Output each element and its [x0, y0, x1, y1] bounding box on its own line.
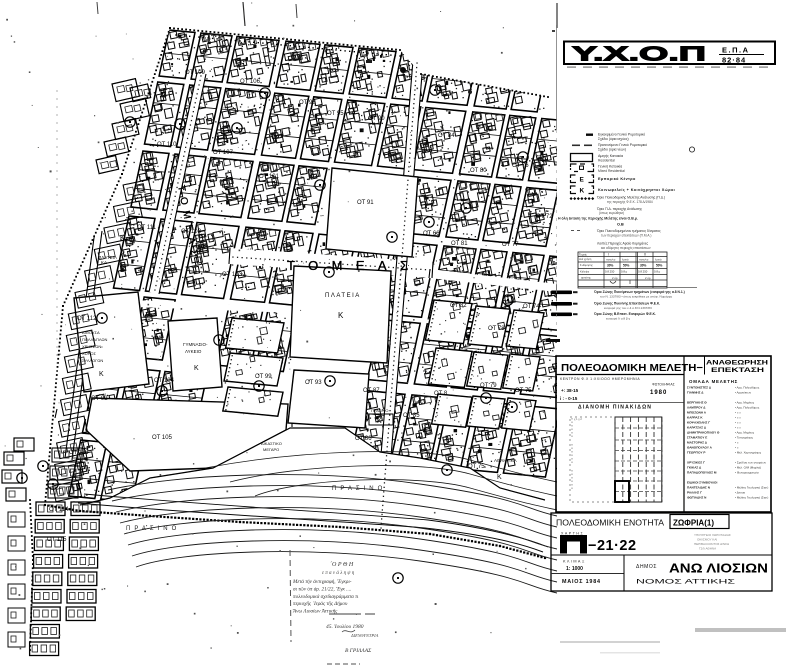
svg-text:ε π α ν ά λ η ψ η: ε π α ν ά λ η ψ η	[322, 571, 355, 576]
svg-text:ΔΙΕΥΘΥΝΤΡΙΑ: ΔΙΕΥΘΥΝΤΡΙΑ	[350, 633, 379, 638]
svg-text:ΛΥΚΕΙΟ: ΛΥΚΕΙΟ	[185, 349, 202, 354]
svg-text:αρτιότης: αρτιότης	[581, 276, 591, 280]
svg-text:ΚΑΡΡΑΣ Κ: ΚΑΡΡΑΣ Κ	[687, 416, 703, 420]
svg-text:30%: 30%	[640, 264, 647, 268]
svg-text:ΟΤ 93: ΟΤ 93	[305, 380, 322, 386]
svg-text:1: 1000: 1: 1000	[566, 566, 583, 572]
svg-text:Τομείς: Τομείς	[579, 253, 587, 257]
svg-text:πυκν/νο: πυκν/νο	[639, 258, 649, 262]
svg-text:50%: 50%	[656, 264, 663, 268]
svg-text:• Δίκτυα: • Δίκτυα	[735, 491, 745, 495]
svg-text:ΟΤ 90: ΟΤ 90	[368, 116, 385, 122]
svg-text:ΟΤ 103: ΟΤ 103	[222, 272, 243, 278]
svg-text:ΟΤ 92: ΟΤ 92	[91, 396, 108, 402]
svg-text:Ε: Ε	[580, 177, 585, 184]
svg-text:ΟΤ 113: ΟΤ 113	[69, 450, 89, 456]
svg-text:ΠΟΛΛΑΠΛΩΝ: ΠΟΛΛΑΠΛΩΝ	[82, 337, 107, 342]
svg-text:ΟΤ 95: ΟΤ 95	[327, 111, 344, 117]
svg-text:Ε.Π.Α: Ε.Π.Α	[722, 46, 750, 55]
svg-text:και αδόμητες περιοχές επεκτ: και αδόμητες περιοχές επεκτάσεων	[601, 246, 651, 250]
svg-text:ΧΡΗΣΕΩΝ•: ΧΡΗΣΕΩΝ•	[82, 344, 103, 349]
svg-text:ΟΤ 75: ΟΤ 75	[515, 388, 532, 394]
svg-text:ΘΑΝΟΠΟΥΛΟΥ Α: ΘΑΝΟΠΟΥΛΟΥ Α	[687, 446, 713, 450]
svg-text:• Μελ. Ο/Μ (Μηχ/κή): • Μελ. Ο/Μ (Μηχ/κή)	[735, 466, 761, 470]
svg-text:50%: 50%	[623, 264, 630, 268]
svg-text:(όπως κυρώθηκε): (όπως κυρώθηκε)	[599, 211, 624, 215]
svg-text:Σχέδιο (όρια ισχύος): Σχέδιο (όρια ισχύος)	[598, 137, 629, 141]
svg-text:ΟΤ 77: ΟΤ 77	[502, 242, 519, 248]
svg-text:45. Ἰουλίου 1980: 45. Ἰουλίου 1980	[326, 623, 364, 630]
svg-text:• Τοπογράφος: • Τοπογράφος	[735, 436, 754, 440]
svg-text:ΔΙΑΝΟΜΗ ΠΙΝΑΚΙΔΩΝ: ΔΙΑΝΟΜΗ ΠΙΝΑΚΙΔΩΝ	[578, 405, 652, 411]
svg-text:ΧΩΡΟΣ: ΧΩΡΟΣ	[82, 351, 96, 356]
svg-text:• Σχεδ/ση των στοιχείων: • Σχεδ/ση των στοιχείων	[735, 461, 766, 465]
svg-text:ΠΟΛΕΟΔΟΜΙΚΗ ΕΝΟΤΗΤΑ: ΠΟΛΕΟΔΟΜΙΚΗ ΕΝΟΤΗΤΑ	[556, 519, 665, 528]
svg-text:i : - 0-15: i : - 0-15	[560, 396, 578, 401]
svg-text:• Μελέτη Γεωλογική (Στατ): • Μελέτη Γεωλογική (Στατ)	[735, 486, 768, 490]
svg-text:ΟΤ 78: ΟΤ 78	[488, 326, 505, 332]
svg-text:• » »: • » »	[735, 411, 741, 415]
svg-text:ΑΘΛΗΤΙΚΑ: ΑΘΛΗΤΙΚΑ	[494, 458, 517, 463]
svg-text:Υ.Χ.Ο.Π: Υ.Χ.Ο.Π	[572, 44, 706, 66]
svg-text:Προτεινόμενο Γενικό Ρυμοτομικό: Προτεινόμενο Γενικό Ρυμοτομικό	[598, 143, 647, 147]
svg-text:ΛΑΜΠΡΟΥ Δ: ΛΑΜΠΡΟΥ Δ	[687, 406, 706, 410]
svg-text:΄Ο Ρ Θ Η: ΄Ο Ρ Θ Η	[330, 562, 354, 568]
svg-text:Ι: Ι	[608, 253, 609, 257]
svg-text:ΧΑΡΤΗΣ: ΧΑΡΤΗΣ	[561, 532, 584, 536]
svg-text:ΚΛΙΜΑΞ: ΚΛΙΜΑΞ	[563, 560, 586, 564]
svg-text:• Αρχ. Πολεοδόμος: • Αρχ. Πολεοδόμος	[735, 406, 760, 410]
svg-text:• Φωτογραμμετρία: • Φωτογραμμετρία	[735, 471, 759, 475]
svg-text:Κ: Κ	[120, 235, 125, 242]
svg-text:λοιπά: λοιπά	[622, 258, 629, 262]
svg-text:Σχέδιο (όρια νέων): Σχέδιο (όρια νέων)	[598, 148, 626, 152]
svg-text:ΚΑΡΑΤΖΑΣ Δ: ΚΑΡΑΤΖΑΣ Δ	[687, 426, 707, 430]
svg-text:Κ: Κ	[580, 188, 585, 195]
svg-text:Αμιγής Κατοικία: Αμιγής Κατοικία	[598, 154, 623, 158]
svg-text:ΟΤ 80: ΟΤ 80	[470, 168, 487, 174]
svg-text:Mixed Residential: Mixed Residential	[598, 169, 625, 173]
svg-text:ΟΤ 101: ΟΤ 101	[259, 174, 280, 180]
svg-text:ΟΤ 79: ΟΤ 79	[480, 383, 497, 389]
svg-text:ΠΑΠΑΔΟΠΟΥΛΟΣ Μ: ΠΑΠΑΔΟΠΟΥΛΟΣ Μ	[687, 471, 717, 475]
svg-text:Κ: Κ	[338, 311, 344, 320]
svg-text:Κ: Κ	[194, 365, 199, 372]
svg-text:• Αρχ. Μηχ/κος: • Αρχ. Μηχ/κος	[735, 401, 755, 405]
svg-text:ΣΥΝΤΟΝΙΣΤΕΣ Δ: ΣΥΝΤΟΝΙΣΤΕΣ Δ	[687, 386, 712, 390]
svg-text:• Αρχ. Μηχ/κος: • Αρχ. Μηχ/κος	[735, 431, 755, 435]
svg-text:Κ: Κ	[497, 474, 502, 481]
svg-text:Ο.Β: Ο.Β	[617, 223, 624, 227]
svg-text:Όριο Πολεοδομικής Μελέτης Ανάλ: Όριο Πολεοδομικής Μελέτης Ανάλυσης (Π.Δ.…	[596, 196, 665, 200]
svg-text:ΟΤ 106: ΟΤ 106	[240, 79, 261, 85]
svg-text:πυκν/νο: πυκν/νο	[606, 258, 616, 262]
svg-text:ΟΤ 98: ΟΤ 98	[299, 100, 316, 106]
svg-text:ΟΙΚΙΣΜΟΥ ΚΑΙ: ΟΙΚΙΣΜΟΥ ΚΑΙ	[697, 538, 717, 542]
svg-text:ΠΡΑΣΙΝΟ: ΠΡΑΣΙΝΟ	[126, 526, 180, 532]
svg-text:Λοιπές Περιοχές Αραίο δομημ: Λοιπές Περιοχές Αραίο δομημένες	[597, 242, 648, 246]
svg-text:ΠΡΑΣΙΝΟ: ΠΡΑΣΙΝΟ	[332, 486, 386, 492]
svg-text:ΟΤ 109: ΟΤ 109	[185, 70, 206, 76]
svg-text:ΙΙ: ΙΙ	[644, 253, 646, 257]
svg-text:ΟΤ 75: ΟΤ 75	[468, 464, 485, 470]
svg-text:της περιοχής Φ.Ε.Κ. 178 Δ/198: της περιοχής Φ.Ε.Κ. 178 Δ/1984	[607, 200, 653, 204]
svg-text:των περιοχών επεκτάσεων (Π.Μ: των περιοχών επεκτάσεων (Π.Μ.Α.)	[601, 234, 651, 238]
svg-text:Μετά τήν ἀντιγραφή, Ἔγκρι-: Μετά τήν ἀντιγραφή, Ἔγκρι-	[292, 579, 352, 585]
svg-text:Η όλη έκταση της περιοχής Μελέ: Η όλη έκταση της περιοχής Μελέτης είναι …	[558, 217, 638, 221]
svg-text:ΑΙΘΟΥΣΑ: ΑΙΘΟΥΣΑ	[82, 330, 100, 335]
svg-text:ΠΕΡΙΒΑΛΛΟΝΤΟΣ Δ/ΝΣΗ: ΠΕΡΙΒΑΛΛΟΝΤΟΣ Δ/ΝΣΗ	[694, 542, 729, 546]
svg-text:ΟΤ 85: ΟΤ 85	[403, 413, 420, 419]
svg-text:ΚΑ: ΚΑ	[101, 260, 107, 265]
svg-text:ΜΕΓΑΡΟ: ΜΕΓΑΡΟ	[263, 447, 279, 452]
svg-text:χ.1 χ.2: χ.1 χ.2	[574, 417, 582, 421]
svg-text:ΓΕΩΡΓΙΟΥ Ρ: ΓΕΩΡΓΙΟΥ Ρ	[687, 451, 706, 455]
svg-text:ΜΑΣΤΟΡΗΣ Δ: ΜΑΣΤΟΡΗΣ Δ	[687, 441, 708, 445]
svg-text:ΑΝΑΘΕΩΡΗΣΗ: ΑΝΑΘΕΩΡΗΣΗ	[706, 360, 768, 367]
svg-text:0.8 μ: 0.8 μ	[621, 270, 628, 274]
svg-text:ΚΕΝΤΡΟΝ Φ.Χ 1:ΧΧΙΟΟΟ ΗΜΕΡΟΜ: ΚΕΝΤΡΟΝ Φ.Χ 1:ΧΧΙΟΟΟ ΗΜΕΡΟΜΗΝΙΑ	[560, 377, 640, 381]
svg-text:ΦΩΤΟΛΗΨΙΑΣ: ΦΩΤΟΛΗΨΙΑΣ	[652, 383, 675, 387]
svg-text:82·84: 82·84	[722, 56, 746, 65]
svg-text:Β ΓΡΙΛΛΑΣ: Β ΓΡΙΛΛΑΣ	[345, 648, 372, 654]
svg-text:πολεοδομικά σχεδιαγράμματα τ: πολεοδομικά σχεδιαγράμματα τι	[293, 594, 359, 600]
svg-text:ΥΠΟΥΡΓΕΙΟ ΧΩΡΟΤΑΞΙΑΣ: ΥΠΟΥΡΓΕΙΟ ΧΩΡΟΤΑΞΙΑΣ	[694, 533, 731, 537]
svg-text:λοιπά: λοιπά	[655, 258, 662, 262]
svg-text:ΟΤ 99: ΟΤ 99	[255, 374, 272, 380]
svg-text:ΜΠΟΖΩΝΗ Α: ΜΠΟΖΩΝΗ Α	[687, 411, 707, 415]
svg-text:Γενική Κατοικία: Γενική Κατοικία	[598, 165, 622, 169]
svg-text:Όριο Ζώνης Πυκν/μενων τμημά: Όριο Ζώνης Πυκν/μενων τμημάτων (εισφορά …	[593, 290, 685, 294]
svg-text:30%: 30%	[607, 264, 614, 268]
svg-text:1980: 1980	[650, 390, 667, 396]
svg-text:ΟΤ 84: ΟΤ 84	[438, 133, 455, 139]
svg-text:του Ν. 1337/83 • όπως εγκ: του Ν. 1337/83 • όπως εγκρίθηκε με απόφ.…	[600, 295, 672, 299]
svg-text:ΓΚΙΚΑΣ Δ: ΓΚΙΚΑΣ Δ	[687, 466, 702, 470]
svg-text:2 όρ.: 2 όρ.	[645, 276, 651, 280]
svg-text:0.8 250: 0.8 250	[638, 270, 648, 274]
svg-text:2 όρ.: 2 όρ.	[612, 276, 618, 280]
svg-text:ΟΤ 115: ΟΤ 115	[47, 537, 67, 543]
svg-text:ΔΗΜΗΤΡΑΚΟΠ/ΛΟΥ Θ: ΔΗΜΗΤΡΑΚΟΠ/ΛΟΥ Θ	[687, 431, 720, 435]
svg-text:ΓΥΜΝΑΣΙΟ-: ΓΥΜΝΑΣΙΟ-	[183, 342, 208, 347]
svg-text:ΟΤ 114: ΟΤ 114	[49, 507, 69, 513]
svg-text:ΟΤ 8: ΟΤ 8	[434, 391, 448, 397]
svg-text:ΟΤ 104: ΟΤ 104	[154, 378, 175, 384]
svg-text:ΠΡΑΣΙΝΟ: ΠΡΑΣΙΝΟ	[371, 408, 389, 413]
svg-text:ΟΤ 87: ΟΤ 87	[363, 388, 380, 394]
svg-text:ΣΤΑΜΑΤΙΟΥ Ε: ΣΤΑΜΑΤΙΟΥ Ε	[687, 436, 707, 440]
svg-text:ΟΤ 86: ΟΤ 86	[355, 436, 372, 442]
svg-text:ΡΑΛΛΗΣ Γ: ΡΑΛΛΗΣ Γ	[687, 491, 702, 495]
svg-text:ΕΙΔΙΚΟΙ ΣΥΜΒΟΥΛΟΙ: ΕΙΔΙΚΟΙ ΣΥΜΒΟΥΛΟΙ	[687, 481, 717, 485]
svg-text:ΟΤ 76: ΟΤ 76	[512, 163, 529, 169]
svg-text:ΔΙΚΑΣΤΙΚΟ: ΔΙΚΑΣΤΙΚΟ	[261, 441, 282, 446]
svg-text:ΖΩΦΡΙΑ(1): ΖΩΦΡΙΑ(1)	[673, 519, 714, 528]
svg-text:ΟΜΑΔΑ ΜΕΛΕΤΗΣ: ΟΜΑΔΑ ΜΕΛΕΤΗΣ	[689, 379, 738, 384]
svg-text:ΟΤ 107: ΟΤ 107	[213, 150, 234, 156]
svg-text:ΟΤ 74: ΟΤ 74	[523, 304, 540, 310]
svg-text:ΠΟΛΕΟΔΟΜΙΚΗ ΜΕΛΕΤΗ−: ΠΟΛΕΟΔΟΜΙΚΗ ΜΕΛΕΤΗ−	[561, 362, 703, 374]
svg-text:ΧΡΥΣΙΚΟΣ Γ: ΧΡΥΣΙΚΟΣ Γ	[687, 461, 705, 465]
svg-text:Κοινωφελείς + Κοινόχρηστοι Χώ: Κοινωφελείς + Κοινόχρηστοι Χώροι	[598, 188, 675, 192]
svg-text:• » »: • » »	[735, 426, 741, 430]
svg-text:Εγκεκριμένο Γενικό Ρυμοτομικό: Εγκεκριμένο Γενικό Ρυμοτομικό	[598, 133, 645, 137]
svg-text:ΓΙΑΝΝΗΣ Δ: ΓΙΑΝΝΗΣ Δ	[687, 391, 704, 395]
svg-text:σι τῶν ὑπ ἀρ. 21/22, Ἔγκ ....: σι τῶν ὑπ ἀρ. 21/22, Ἔγκ ....	[293, 586, 351, 592]
svg-text:Γ2/δ ΑΘΗΝΑ: Γ2/δ ΑΘΗΝΑ	[699, 547, 716, 551]
svg-text:ΝΟΜΟΣ ΑΤΤΙΚΗΣ: ΝΟΜΟΣ ΑΤΤΙΚΗΣ	[636, 579, 735, 586]
svg-text:• Μελέτη Γεωλογική (Στατ): • Μελέτη Γεωλογική (Στατ)	[735, 496, 768, 500]
svg-text:Όριο Πυκνοδομημένου τμήματος: Όριο Πυκνοδομημένου τμήματος δ/σματος	[596, 229, 661, 233]
svg-text:ΟΤ 110: ΟΤ 110	[157, 142, 177, 148]
svg-text:0.8 μ: 0.8 μ	[654, 270, 661, 274]
svg-text:ΟΤ 82: ΟΤ 82	[450, 303, 467, 309]
svg-text:0.8 250: 0.8 250	[605, 270, 615, 274]
svg-text:ΟΤ 112: ΟΤ 112	[77, 316, 97, 322]
svg-text:Κ: Κ	[99, 371, 104, 378]
svg-text:Κάλυψη: Κάλυψη	[580, 270, 590, 274]
svg-text:ΟΤ 72: ΟΤ 72	[536, 214, 553, 220]
svg-text:• »: • »	[735, 446, 739, 450]
svg-text:εισφορά δ α.8 β.γ: εισφορά δ α.8 β.γ	[606, 317, 631, 321]
svg-text:ΦΩΤΙΑΔΗΣ Ν: ΦΩΤΙΑΔΗΣ Ν	[687, 496, 707, 500]
svg-text:ΟΤ 66: ΟΤ 66	[423, 231, 440, 237]
svg-text:−21·22: −21·22	[588, 538, 637, 554]
svg-text:περιοχῆς ῾Ιεράς τῆς Δήμου: περιοχῆς ῾Ιεράς τῆς Δήμου	[293, 600, 348, 607]
svg-text:ΟΤ 105: ΟΤ 105	[152, 435, 173, 441]
svg-text:• » »: • » »	[735, 416, 741, 420]
svg-text:• Αρχ. Πολεοδόμος: • Αρχ. Πολεοδόμος	[735, 386, 760, 390]
svg-text:ΔΗΜΟΣ: ΔΗΜΟΣ	[636, 564, 657, 570]
svg-text:Σ.Δόμησης: Σ.Δόμησης	[580, 263, 593, 267]
svg-text:Residential: Residential	[598, 159, 615, 163]
svg-text:ΟΤ 111: ΟΤ 111	[137, 225, 157, 231]
svg-text:• Αρχιτέκτων: • Αρχιτέκτων	[735, 391, 752, 395]
svg-text:ΜΑΙΟΣ 1984: ΜΑΙΟΣ 1984	[562, 579, 601, 585]
svg-text:ΟΤ 91: ΟΤ 91	[357, 200, 374, 206]
svg-text:εισφορά γης του ν.4 α.8 Ν: εισφορά γης του ν.4 α.8 Ν.1337/83	[604, 306, 652, 310]
svg-text:• »: • »	[735, 441, 739, 445]
svg-text:ΠΛΑΤΕΙΑ: ΠΛΑΤΕΙΑ	[325, 293, 361, 299]
svg-text:ΕΠΕΚΤΑΣΗ: ΕΠΕΚΤΑΣΗ	[711, 367, 764, 374]
svg-text:Όριο Ζώνης Πυκν/νης Επεκτάσ: Όριο Ζώνης Πυκν/νης Επεκτάσεων Φ.Ε.Κ.	[593, 302, 660, 306]
svg-text:Όριο Ζώνης Β.Επεκτ. Εισφορώ: Όριο Ζώνης Β.Επεκτ. Εισφορών Φ.Ε.Κ.	[593, 312, 656, 316]
svg-text:• Μελ. Χαρτογράφος: • Μελ. Χαρτογράφος	[735, 451, 762, 455]
svg-text:ΟΤ 81: ΟΤ 81	[451, 241, 468, 247]
svg-text:+: 38-15: +: 38-15	[561, 388, 579, 393]
svg-text:ΠΑΝΤΕΛΙΔΗΣ Ν: ΠΑΝΤΕΛΙΔΗΣ Ν	[687, 486, 711, 490]
svg-text:• » »: • » »	[735, 421, 741, 425]
svg-text:ΑΝΩ ΛΙΟΣΙΩΝ: ΑΝΩ ΛΙΟΣΙΩΝ	[669, 562, 768, 576]
svg-text:ΒΕΡΓΑΚΗΣ Θ: ΒΕΡΓΑΚΗΣ Θ	[687, 401, 707, 405]
svg-text:Κ: Κ	[377, 418, 382, 425]
svg-text:ΣΥΛΛΟΓΩΝ: ΣΥΛΛΟΓΩΝ	[82, 358, 103, 363]
svg-text:Εμπορικό Κέντρο: Εμπορικό Κέντρο	[598, 177, 636, 181]
svg-text:ΚΟΨΑΧΕΙΛΗΣ Γ: ΚΟΨΑΧΕΙΛΗΣ Γ	[687, 421, 710, 425]
svg-text:ανά χρήση: ανά χρήση	[579, 257, 592, 261]
